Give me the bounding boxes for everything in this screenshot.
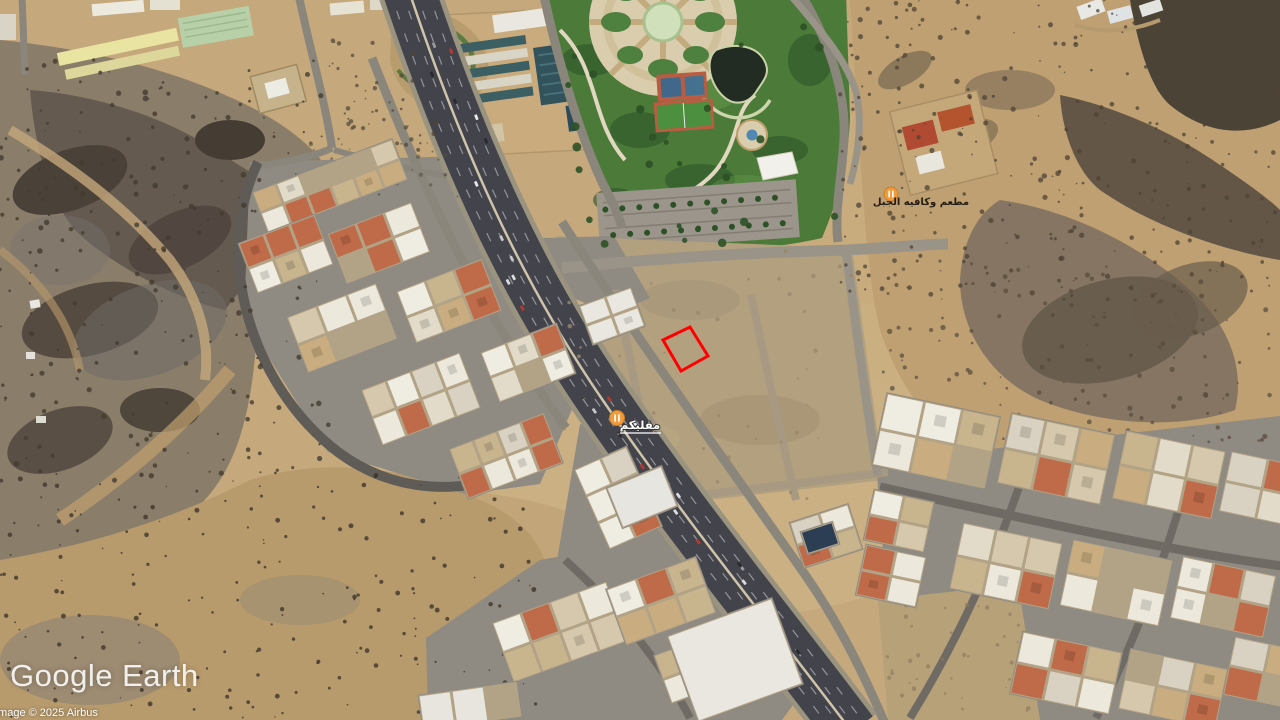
google-earth-watermark: Google Earth [10,658,199,694]
satellite-view[interactable]: مقليكم مطعم وكافيه الجبل [0,0,1280,720]
imagery-copyright: Image © 2025 Airbus [0,707,98,719]
google-earth-window: مقليكم مطعم وكافيه الجبل Google Earth Im… [0,0,1280,720]
sports-courts [653,71,713,131]
poi-label-1[interactable]: مقليكم [620,418,661,432]
poi-label-2[interactable]: مطعم وكافيه الجبل [873,197,969,208]
